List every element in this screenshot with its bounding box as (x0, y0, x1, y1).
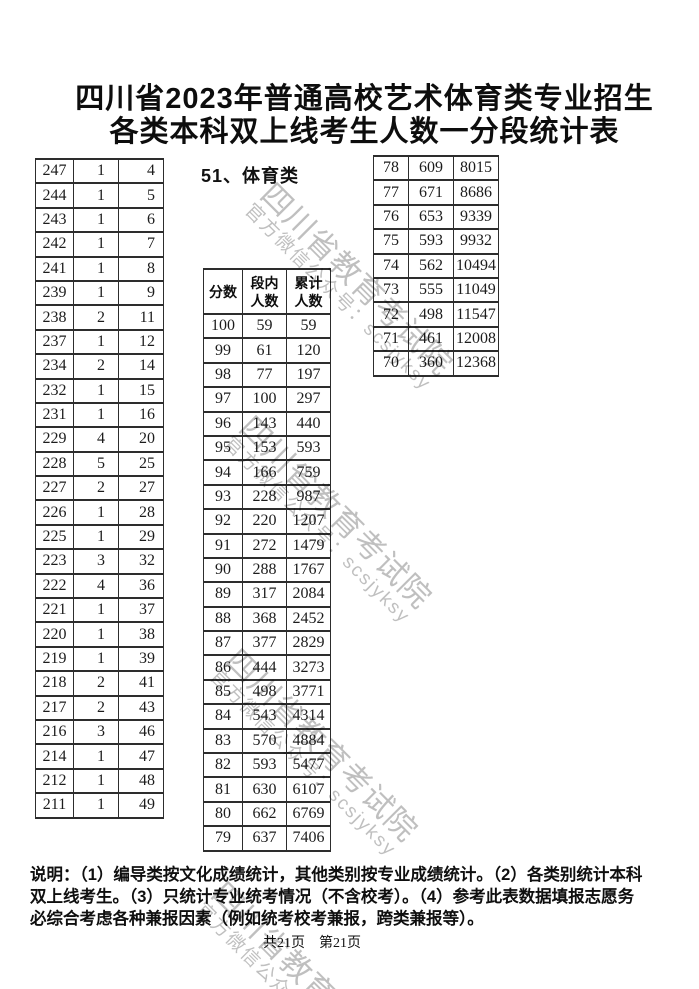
score-table-continuation: 2471424415243162421724118239192382112371… (35, 158, 164, 819)
header-row: 分数 段内人数 累计人数 (204, 269, 331, 314)
table-row: 222436 (36, 574, 164, 598)
table-cell: 1 (74, 159, 119, 183)
table-cell: 2 (74, 305, 119, 329)
table-cell: 498 (409, 302, 454, 326)
table-cell: 7406 (287, 826, 331, 850)
table-cell: 80 (204, 802, 243, 826)
column-header-cumulative-count: 累计人数 (287, 269, 331, 314)
table-row: 24118 (36, 257, 164, 281)
table-cell: 11 (119, 305, 164, 329)
table-row: 229420 (36, 427, 164, 451)
table-cell: 36 (119, 574, 164, 598)
table-row: 7146112008 (374, 327, 499, 351)
table-cell: 219 (36, 647, 74, 671)
table-row: 234214 (36, 354, 164, 378)
table-cell: 1 (74, 744, 119, 768)
table-cell: 4 (119, 159, 164, 183)
table-cell: 2 (74, 354, 119, 378)
table-row: 1005959 (204, 314, 331, 338)
table-cell: 3771 (287, 680, 331, 704)
table-cell: 317 (243, 582, 287, 606)
table-cell: 4314 (287, 704, 331, 728)
table-row: 902881767 (204, 558, 331, 582)
table-cell: 272 (243, 534, 287, 558)
table-cell: 223 (36, 549, 74, 573)
table-cell: 221 (36, 598, 74, 622)
table-cell: 1 (74, 647, 119, 671)
table-cell: 3 (74, 549, 119, 573)
table-row: 232115 (36, 379, 164, 403)
table-cell: 85 (204, 680, 243, 704)
table-cell: 234 (36, 354, 74, 378)
table-row: 806626769 (204, 802, 331, 826)
table-cell: 8686 (454, 180, 499, 204)
table-row: 94166759 (204, 460, 331, 484)
table-cell: 48 (119, 769, 164, 793)
table-cell: 562 (409, 254, 454, 278)
table-cell: 25 (119, 452, 164, 476)
table-cell: 368 (243, 607, 287, 631)
table-cell: 220 (243, 509, 287, 533)
page-title: 四川省2023年普通高校艺术体育类专业招生 各类本科双上线考生人数一分段统计表 (0, 83, 699, 149)
table-row: 9961120 (204, 338, 331, 362)
table-row: 912721479 (204, 534, 331, 558)
table-cell: 94 (204, 460, 243, 484)
table-row: 214147 (36, 744, 164, 768)
table-cell: 498 (243, 680, 287, 704)
table-cell: 570 (243, 729, 287, 753)
table-cell: 214 (36, 744, 74, 768)
score-table-continuation-body: 2471424415243162421724118239192382112371… (36, 159, 164, 818)
table-cell: 98 (204, 363, 243, 387)
table-cell: 662 (243, 802, 287, 826)
table-cell: 229 (36, 427, 74, 451)
table-cell: 1 (74, 379, 119, 403)
table-cell: 9932 (454, 229, 499, 253)
table-row: 9877197 (204, 363, 331, 387)
table-row: 922201207 (204, 509, 331, 533)
table-cell: 29 (119, 525, 164, 549)
table-cell: 227 (36, 476, 74, 500)
table-row: 212148 (36, 769, 164, 793)
table-cell: 166 (243, 460, 287, 484)
table-cell: 5477 (287, 753, 331, 777)
column-header-score: 分数 (204, 269, 243, 314)
table-row: 221137 (36, 598, 164, 622)
table-row: 883682452 (204, 607, 331, 631)
table-cell: 1 (74, 281, 119, 305)
table-cell: 360 (409, 351, 454, 375)
notes-line: 必综合考虑各种兼报因素（例如统考校考兼报，跨类兼报等）。 (30, 908, 695, 930)
table-cell: 630 (243, 777, 287, 801)
table-cell: 1 (74, 232, 119, 256)
table-row: 216346 (36, 720, 164, 744)
table-row: 835704884 (204, 729, 331, 753)
table-cell: 225 (36, 525, 74, 549)
table-cell: 237 (36, 330, 74, 354)
table-row: 97100297 (204, 387, 331, 411)
table-cell: 555 (409, 278, 454, 302)
table-cell: 653 (409, 205, 454, 229)
table-cell: 4 (74, 427, 119, 451)
table-cell: 16 (119, 403, 164, 427)
table-cell: 228 (243, 485, 287, 509)
table-cell: 609 (409, 156, 454, 180)
table-cell: 99 (204, 338, 243, 362)
table-cell: 1 (74, 208, 119, 232)
table-cell: 1479 (287, 534, 331, 558)
table-cell: 1207 (287, 509, 331, 533)
table-cell: 220 (36, 622, 74, 646)
table-row: 93228987 (204, 485, 331, 509)
notes-line: 双上线考生。（3）只统计专业统考情况（不含校考）。（4）参考此表数据填报志愿务 (30, 886, 695, 908)
page-title-line1: 四川省2023年普通高校艺术体育类专业招生 (30, 83, 699, 116)
table-cell: 37 (119, 598, 164, 622)
table-cell: 226 (36, 500, 74, 524)
table-row: 755939932 (374, 229, 499, 253)
table-cell: 2 (74, 696, 119, 720)
table-row: 864443273 (204, 655, 331, 679)
table-cell: 100 (243, 387, 287, 411)
table-cell: 1 (74, 403, 119, 427)
table-cell: 3273 (287, 655, 331, 679)
table-cell: 440 (287, 412, 331, 436)
table-cell: 27 (119, 476, 164, 500)
table-cell: 77 (374, 180, 409, 204)
table-cell: 82 (204, 753, 243, 777)
table-cell: 100 (204, 314, 243, 338)
table-cell: 987 (287, 485, 331, 509)
table-cell: 96 (204, 412, 243, 436)
table-cell: 15 (119, 379, 164, 403)
table-row: 217243 (36, 696, 164, 720)
table-cell: 247 (36, 159, 74, 183)
table-cell: 593 (287, 436, 331, 460)
table-cell: 75 (374, 229, 409, 253)
table-cell: 6107 (287, 777, 331, 801)
table-cell: 4884 (287, 729, 331, 753)
table-row: 893172084 (204, 582, 331, 606)
table-cell: 543 (243, 704, 287, 728)
table-cell: 637 (243, 826, 287, 850)
table-cell: 39 (119, 647, 164, 671)
table-cell: 1 (74, 500, 119, 524)
table-cell: 77 (243, 363, 287, 387)
table-cell: 6 (119, 208, 164, 232)
table-cell: 38 (119, 622, 164, 646)
table-cell: 6769 (287, 802, 331, 826)
table-row: 220138 (36, 622, 164, 646)
table-cell: 461 (409, 327, 454, 351)
table-row: 7456210494 (374, 254, 499, 278)
table-row: 825935477 (204, 753, 331, 777)
table-cell: 79 (204, 826, 243, 850)
table-cell: 243 (36, 208, 74, 232)
table-cell: 1 (74, 525, 119, 549)
notes-line: 说明：（1）编导类按文化成绩统计，其他类别按专业成绩统计。（2）各类别统计本科 (30, 864, 695, 886)
table-cell: 1 (74, 257, 119, 281)
table-cell: 73 (374, 278, 409, 302)
table-cell: 11049 (454, 278, 499, 302)
table-cell: 8015 (454, 156, 499, 180)
table-cell: 84 (204, 704, 243, 728)
table-cell: 143 (243, 412, 287, 436)
table-cell: 244 (36, 183, 74, 207)
document-page: 四川省2023年普通高校艺术体育类专业招生 各类本科双上线考生人数一分段统计表 … (0, 0, 699, 989)
table-cell: 83 (204, 729, 243, 753)
table-cell: 197 (287, 363, 331, 387)
table-row: 211149 (36, 793, 164, 817)
table-cell: 10494 (454, 254, 499, 278)
table-row: 816306107 (204, 777, 331, 801)
table-cell: 4 (74, 574, 119, 598)
table-cell: 28 (119, 500, 164, 524)
table-cell: 242 (36, 232, 74, 256)
table-row: 24714 (36, 159, 164, 183)
table-cell: 70 (374, 351, 409, 375)
table-cell: 232 (36, 379, 74, 403)
table-cell: 444 (243, 655, 287, 679)
table-cell: 32 (119, 549, 164, 573)
table-cell: 297 (287, 387, 331, 411)
table-cell: 12 (119, 330, 164, 354)
table-row: 218241 (36, 671, 164, 695)
table-cell: 1 (74, 622, 119, 646)
table-cell: 2452 (287, 607, 331, 631)
table-row: 24316 (36, 208, 164, 232)
table-row: 226128 (36, 500, 164, 524)
table-cell: 2 (74, 476, 119, 500)
table-cell: 97 (204, 387, 243, 411)
table-cell: 74 (374, 254, 409, 278)
table-row: 24217 (36, 232, 164, 256)
table-cell: 95 (204, 436, 243, 460)
table-cell: 78 (374, 156, 409, 180)
table-cell: 218 (36, 671, 74, 695)
table-row: 238211 (36, 305, 164, 329)
table-cell: 72 (374, 302, 409, 326)
table-cell: 1767 (287, 558, 331, 582)
table-row: 7249811547 (374, 302, 499, 326)
table-cell: 759 (287, 460, 331, 484)
column-header-segment-count: 段内人数 (243, 269, 287, 314)
table-row: 796377406 (204, 826, 331, 850)
table-cell: 86 (204, 655, 243, 679)
table-cell: 90 (204, 558, 243, 582)
table-cell: 211 (36, 793, 74, 817)
table-row: 225129 (36, 525, 164, 549)
table-cell: 239 (36, 281, 74, 305)
table-row: 231116 (36, 403, 164, 427)
table-cell: 71 (374, 327, 409, 351)
table-row: 24415 (36, 183, 164, 207)
table-row: 223332 (36, 549, 164, 573)
score-table-overflow-body: 7860980157767186867665393397559399327456… (374, 156, 499, 376)
notes-block: 说明：（1）编导类按文化成绩统计，其他类别按专业成绩统计。（2）各类别统计本科 … (30, 864, 695, 930)
table-cell: 14 (119, 354, 164, 378)
table-cell: 20 (119, 427, 164, 451)
table-cell: 153 (243, 436, 287, 460)
table-cell: 217 (36, 696, 74, 720)
table-cell: 228 (36, 452, 74, 476)
table-row: 227227 (36, 476, 164, 500)
table-cell: 7 (119, 232, 164, 256)
table-cell: 2 (74, 671, 119, 695)
table-cell: 238 (36, 305, 74, 329)
table-cell: 87 (204, 631, 243, 655)
table-row: 873772829 (204, 631, 331, 655)
footer-total-pages: 共21页 (263, 936, 305, 951)
table-row: 786098015 (374, 156, 499, 180)
table-row: 7036012368 (374, 351, 499, 375)
table-row: 219139 (36, 647, 164, 671)
table-cell: 1 (74, 330, 119, 354)
table-cell: 593 (243, 753, 287, 777)
table-cell: 91 (204, 534, 243, 558)
table-cell: 11547 (454, 302, 499, 326)
table-cell: 8 (119, 257, 164, 281)
table-cell: 12008 (454, 327, 499, 351)
table-cell: 216 (36, 720, 74, 744)
score-table-overflow: 7860980157767186867665393397559399327456… (373, 155, 499, 377)
table-cell: 47 (119, 744, 164, 768)
table-cell: 43 (119, 696, 164, 720)
table-cell: 46 (119, 720, 164, 744)
table-cell: 288 (243, 558, 287, 582)
table-cell: 2084 (287, 582, 331, 606)
table-cell: 212 (36, 769, 74, 793)
table-cell: 120 (287, 338, 331, 362)
table-cell: 5 (74, 452, 119, 476)
table-cell: 76 (374, 205, 409, 229)
table-row: 228525 (36, 452, 164, 476)
table-cell: 81 (204, 777, 243, 801)
table-row: 23919 (36, 281, 164, 305)
table-cell: 593 (409, 229, 454, 253)
table-cell: 61 (243, 338, 287, 362)
table-cell: 59 (243, 314, 287, 338)
table-cell: 89 (204, 582, 243, 606)
score-table-main-body: 1005959996112098771979710029796143440951… (204, 314, 331, 851)
table-cell: 231 (36, 403, 74, 427)
table-cell: 5 (119, 183, 164, 207)
table-row: 776718686 (374, 180, 499, 204)
table-cell: 3 (74, 720, 119, 744)
table-cell: 12368 (454, 351, 499, 375)
table-cell: 1 (74, 598, 119, 622)
score-table-header: 分数 段内人数 累计人数 (204, 269, 331, 314)
table-row: 7355511049 (374, 278, 499, 302)
table-cell: 671 (409, 180, 454, 204)
table-cell: 93 (204, 485, 243, 509)
score-table-main: 分数 段内人数 累计人数 100595999611209877197971002… (203, 268, 331, 852)
table-cell: 92 (204, 509, 243, 533)
table-cell: 1 (74, 793, 119, 817)
table-row: 766539339 (374, 205, 499, 229)
table-cell: 1 (74, 183, 119, 207)
page-title-line2: 各类本科双上线考生人数一分段统计表 (30, 116, 699, 149)
table-cell: 49 (119, 793, 164, 817)
table-row: 854983771 (204, 680, 331, 704)
table-cell: 222 (36, 574, 74, 598)
table-cell: 2829 (287, 631, 331, 655)
table-cell: 9339 (454, 205, 499, 229)
table-cell: 59 (287, 314, 331, 338)
table-row: 845434314 (204, 704, 331, 728)
footer-current-page: 第21页 (319, 936, 361, 951)
table-cell: 9 (119, 281, 164, 305)
table-cell: 88 (204, 607, 243, 631)
table-cell: 41 (119, 671, 164, 695)
table-row: 95153593 (204, 436, 331, 460)
table-row: 96143440 (204, 412, 331, 436)
section-label: 51、体育类 (201, 162, 299, 188)
table-cell: 241 (36, 257, 74, 281)
table-row: 237112 (36, 330, 164, 354)
page-footer: 共21页第21页 (263, 932, 361, 952)
table-cell: 1 (74, 769, 119, 793)
table-cell: 377 (243, 631, 287, 655)
